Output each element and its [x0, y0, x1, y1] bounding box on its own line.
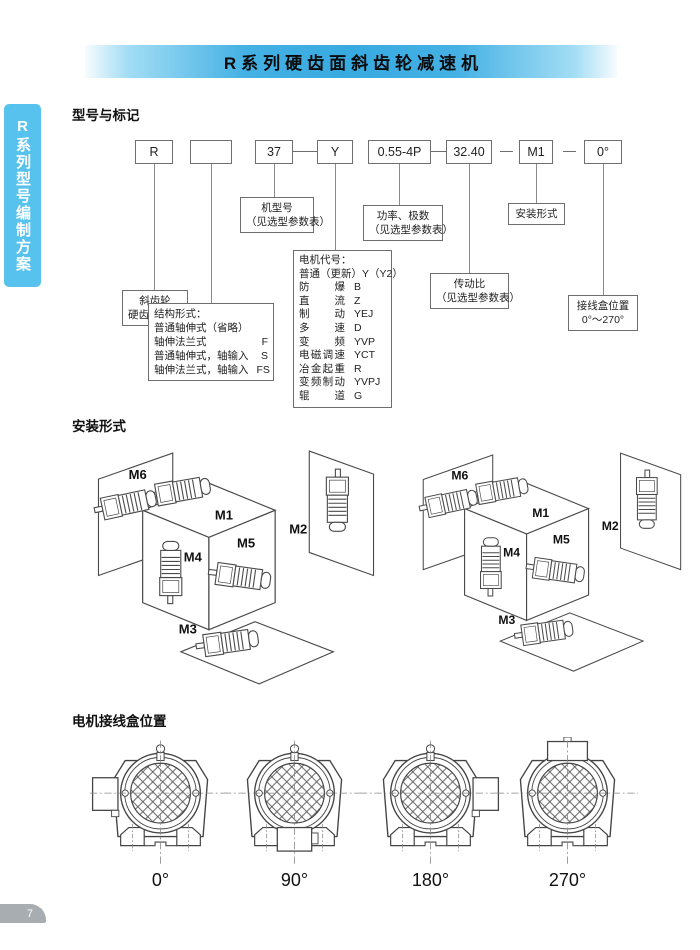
motor-code-value: D: [354, 322, 362, 336]
motor-code-label: 电磁调速: [299, 349, 345, 363]
callout-title: 电机代号：: [299, 254, 386, 268]
motor-code-value: Z: [354, 295, 360, 309]
callout-line: 传动比: [436, 277, 503, 291]
terminal-figure-180deg: [358, 737, 503, 871]
callout-mounting-form: 安装形式: [508, 203, 565, 225]
mount-label-m5: M5: [553, 532, 570, 546]
motor-code-row: 电磁调速 YCT: [299, 349, 386, 363]
connector-dash: [500, 151, 513, 152]
motor-code-row: 变频 YVP: [299, 336, 386, 350]
structure-row: 轴伸法兰式 F: [154, 335, 268, 349]
callout-line: 安装形式: [514, 207, 559, 221]
mount-label-m1: M1: [532, 506, 549, 520]
callout-motor-codes: 电机代号： 普通（更新）Y（Y2） 防爆 B 直流 Z 制动 YEJ 多速 D …: [293, 250, 392, 408]
code-box-power-poles: 0.55-4P: [368, 140, 431, 164]
sidebar-chapter-tab: R系列型号编制方案: [4, 104, 41, 287]
terminal-caption-270deg: 270°: [495, 870, 640, 891]
callout-power-poles: 功率、极数 （见选型参数表）: [363, 205, 443, 241]
callout-line: （见选型参数表）: [436, 291, 503, 305]
section-heading-model: 型号与标记: [72, 104, 140, 124]
motor-code-value: YVP: [354, 336, 375, 350]
motor-code-row: 多速 D: [299, 322, 386, 336]
terminal-caption-90deg: 90°: [222, 870, 367, 891]
motor-code-row: 防爆 B: [299, 281, 386, 295]
page-number-tab: 7: [0, 904, 46, 923]
callout-structure-form: 结构形式： 普通轴伸式（省略） 轴伸法兰式 F 普通轴伸式，轴输入 S 轴伸法兰…: [148, 303, 274, 381]
callout-line: （见选型参数表）: [246, 215, 308, 229]
mount-label-m3: M3: [179, 622, 197, 637]
leader-line: [335, 164, 336, 250]
callout-terminal-position: 接线盒位置 0°～270°: [568, 295, 638, 331]
code-box-motor-type: Y: [317, 140, 353, 164]
terminal-figure-0deg: [88, 737, 233, 871]
code-box-mounting: M1: [519, 140, 553, 164]
structure-code: F: [262, 335, 268, 349]
leader-line: [603, 164, 604, 295]
callout-ratio: 传动比 （见选型参数表）: [430, 273, 509, 309]
callout-frame-size: 机型号 （见选型参数表）: [240, 197, 314, 233]
terminal-caption-180deg: 180°: [358, 870, 503, 891]
motor-code-value: R: [354, 363, 362, 377]
structure-code: S: [261, 349, 268, 363]
mounting-diagram-flange-version: M1 M2 M3 M4 M5 M6: [410, 440, 692, 689]
structure-label: 轴伸法兰式: [154, 335, 207, 349]
terminal-caption-0deg: 0°: [88, 870, 233, 891]
structure-label: 普通轴伸式，轴输入: [154, 349, 249, 363]
leader-line: [399, 164, 400, 205]
motor-code-label: 变频: [299, 336, 345, 350]
code-box-frame-size: 37: [255, 140, 293, 164]
callout-line: （见选型参数表）: [369, 223, 437, 237]
motor-code-row: 冶金起重 R: [299, 363, 386, 377]
structure-row: 轴伸法兰式，轴输入 FS: [154, 363, 268, 377]
code-box-ratio: 32.40: [446, 140, 492, 164]
leader-line: [469, 164, 470, 273]
motor-code-row: 直流 Z: [299, 295, 386, 309]
structure-label: 普通轴伸式（省略）: [154, 321, 249, 335]
motor-code-label: 冶金起重: [299, 363, 345, 377]
callout-line: 接线盒位置: [574, 299, 632, 313]
mount-label-m4: M4: [184, 549, 203, 564]
structure-row: 普通轴伸式（省略）: [154, 321, 268, 335]
structure-label: 轴伸法兰式，轴输入: [154, 363, 249, 377]
connector-line: [293, 151, 317, 152]
leader-line: [536, 164, 537, 203]
connector-dash: [563, 151, 576, 152]
mount-label-m2: M2: [289, 521, 307, 536]
motor-code-first-row: 普通（更新）Y（Y2）: [299, 268, 386, 282]
motor-code-label: 多速: [299, 322, 345, 336]
motor-code-row: 变频制动 YVPJ: [299, 376, 386, 390]
mounting-diagram-shaft-version: M1 M2 M3 M4 M5 M6: [84, 437, 386, 703]
motor-code-label: 直流: [299, 295, 345, 309]
motor-code-label: 辊道: [299, 390, 345, 404]
callout-line: 机型号: [246, 201, 308, 215]
code-box-structure: [190, 140, 232, 164]
section-heading-mounting: 安装形式: [72, 415, 126, 435]
motor-code-row: 制动 YEJ: [299, 308, 386, 322]
mount-label-m3: M3: [498, 613, 515, 627]
terminal-figure-90deg: [222, 737, 367, 871]
motor-code-value: YEJ: [354, 308, 373, 322]
motor-code-value: G: [354, 390, 362, 404]
motor-code-label: 变频制动: [299, 376, 345, 390]
motor-code-value: YVPJ: [354, 376, 380, 390]
code-box-series: R: [135, 140, 173, 164]
mount-label-m4: M4: [503, 546, 520, 560]
leader-line: [274, 164, 275, 197]
mount-label-m1: M1: [215, 507, 233, 522]
mount-label-m6: M6: [451, 468, 468, 482]
page-title: R系列硬齿面斜齿轮减速机: [85, 45, 617, 78]
code-box-terminal-angle: 0°: [584, 140, 622, 164]
mount-label-m2: M2: [602, 519, 619, 533]
callout-title: 结构形式：: [154, 307, 268, 321]
mount-label-m6: M6: [129, 467, 147, 482]
motor-code-value: YCT: [354, 349, 375, 363]
terminal-figure-270deg: [495, 737, 640, 871]
motor-code-row: 辊道 G: [299, 390, 386, 404]
section-heading-terminal: 电机接线盒位置: [72, 710, 167, 730]
structure-code: FS: [257, 363, 270, 377]
callout-line: 0°～270°: [574, 313, 632, 327]
motor-code-label: 防爆: [299, 281, 345, 295]
motor-code-label: 制动: [299, 308, 345, 322]
connector-line: [431, 151, 446, 152]
leader-line: [154, 164, 155, 290]
leader-line: [211, 164, 212, 303]
motor-code-value: B: [354, 281, 361, 295]
structure-row: 普通轴伸式，轴输入 S: [154, 349, 268, 363]
mount-label-m5: M5: [237, 535, 255, 550]
callout-line: 功率、极数: [369, 209, 437, 223]
